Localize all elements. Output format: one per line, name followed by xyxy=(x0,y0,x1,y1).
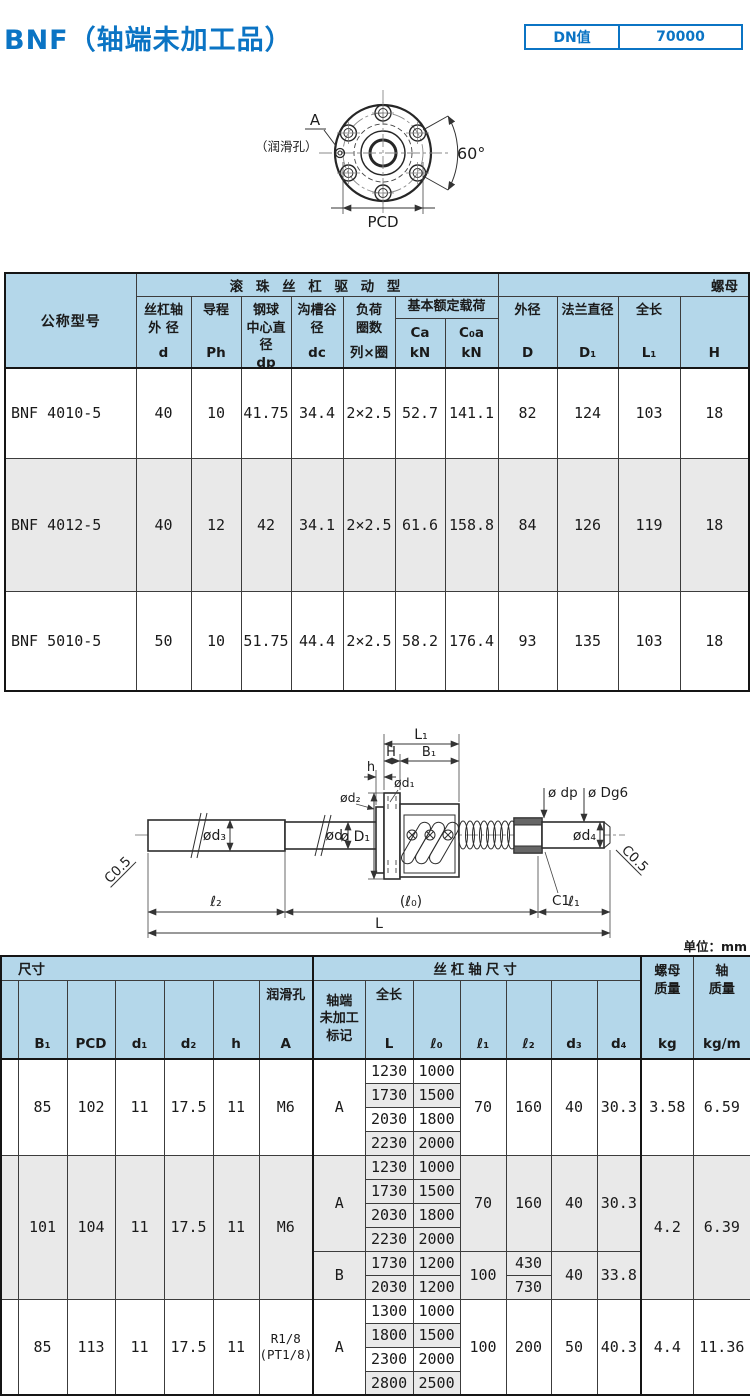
cell-model: BNF 4012-5 xyxy=(5,458,136,591)
cell-model: BNF 4010-5 xyxy=(5,368,136,458)
col-header-shaft-mass: 轴 质量kg/m xyxy=(693,956,750,1059)
label-pcd: PCD xyxy=(367,213,398,231)
page-title: BNF（轴端未加工品） xyxy=(4,18,293,57)
cell-blank xyxy=(1,1059,18,1155)
lube-hole-callout: A （润滑孔） xyxy=(255,111,336,154)
label-d2: ød₂ xyxy=(340,790,361,805)
wiper-collar xyxy=(514,818,542,853)
label-d4: ød₄ xyxy=(573,828,596,844)
label-lube-hole: （润滑孔） xyxy=(255,139,318,154)
label-d3: ød₃ xyxy=(203,828,226,844)
label-L1: L₁ xyxy=(414,727,427,743)
col-header-turns: 负荷 圈数列×圈 xyxy=(343,296,395,368)
label-L: L xyxy=(375,916,383,932)
col-header-ca: CakN xyxy=(395,318,445,368)
table-row: 101 104 11 17.5 11 M6 A 1230 1000 70 160… xyxy=(1,1155,750,1179)
col-header-d: 丝杠轴 外 径d xyxy=(136,296,191,368)
col-header-l0: ℓ₀ xyxy=(413,980,460,1059)
label-l0: (ℓ₀) xyxy=(400,894,422,910)
group-header-nut: 螺母 xyxy=(498,273,749,296)
catalog-page: { "page": { "title": "BNF（轴端未加工品）", "uni… xyxy=(0,0,750,1400)
col-header-mark: 轴端 未加工 标记 xyxy=(313,980,365,1059)
dn-label: DN值 xyxy=(526,26,620,48)
label-c05-right: C0.5 xyxy=(618,842,651,875)
group-header-size: 尺寸 xyxy=(1,956,313,980)
cell-model: BNF 5010-5 xyxy=(5,591,136,691)
col-header-d3: d₃ xyxy=(551,980,597,1059)
table-row: 85 102 11 17.5 11 M6 A 1230 1000 70 160 … xyxy=(1,1059,750,1083)
col-header-h: h xyxy=(213,980,259,1059)
col-header-d4: d₄ xyxy=(597,980,641,1059)
col-header-c0a: C₀akN xyxy=(445,318,498,368)
dn-value-box: DN值 70000 xyxy=(524,24,743,50)
label-c05-left: C0.5 xyxy=(101,854,134,887)
col-header-d2: d₂ xyxy=(164,980,213,1059)
label-dg6: ø Dg6 xyxy=(588,785,628,801)
col-header-nut-mass: 螺母 质量kg xyxy=(641,956,693,1059)
col-header-model: 公称型号 xyxy=(5,273,136,368)
col-header-dc: 沟槽谷径dc xyxy=(291,296,343,368)
col-header-D: 外径D xyxy=(498,296,557,368)
col-header-B1: B₁ xyxy=(18,980,67,1059)
col-header-blank xyxy=(1,980,18,1059)
table-row: BNF 4012-5 40 12 42 34.1 2×2.5 61.6 158.… xyxy=(5,458,749,591)
col-header-ph: 导程Ph xyxy=(191,296,241,368)
table-row: BNF 5010-5 50 10 51.75 44.4 2×2.5 58.2 1… xyxy=(5,591,749,691)
col-header-L: 全长L xyxy=(365,980,413,1059)
col-header-l2: ℓ₂ xyxy=(506,980,551,1059)
dimensions-table: 尺寸 丝杠轴尺寸 螺母 质量kg 轴 质量kg/m B₁ PCD d₁ d₂ h… xyxy=(0,955,750,1396)
label-h: h xyxy=(367,760,375,775)
label-d1: ød₁ xyxy=(394,775,415,790)
label-D1: ø D₁ xyxy=(341,829,370,845)
col-header-lube: 润滑孔A xyxy=(259,980,313,1059)
table-row: 85 113 11 17.5 11 R1/8 (PT1/8) A 1300 10… xyxy=(1,1299,750,1323)
col-header-load: 基本额定载荷 xyxy=(395,296,498,318)
label-l2: ℓ₂ xyxy=(209,894,221,910)
ballscrew-side-view-drawing: L₁ H B₁ h ød₁ ød₂ ø dp ø Dg6 ød₃ ød ø D₁… xyxy=(0,690,750,950)
label-l1: ℓ₁ xyxy=(567,894,579,910)
col-header-L1: 全长L₁ xyxy=(618,296,680,368)
group-header-drive: 滚 珠 丝 杠 驱 动 型 xyxy=(136,273,498,296)
col-header-D1: 法兰直径D₁ xyxy=(557,296,618,368)
label-B1: B₁ xyxy=(422,745,436,760)
col-header-dp: 钢球 中心直径dp xyxy=(241,296,291,368)
label-H: H xyxy=(386,745,396,760)
group-header-shaft: 丝杠轴尺寸 xyxy=(313,956,641,980)
dn-value: 70000 xyxy=(620,26,741,48)
col-header-l1: ℓ₁ xyxy=(460,980,506,1059)
label-a: A xyxy=(310,111,321,129)
cell-blank xyxy=(1,1299,18,1395)
col-header-H: H xyxy=(680,296,749,368)
unit-note: 单位：mm xyxy=(683,936,747,955)
col-header-d1: d₁ xyxy=(115,980,164,1059)
table-row: BNF 4010-5 40 10 41.75 34.4 2×2.5 52.7 1… xyxy=(5,368,749,458)
flange-front-view-diagram: A （润滑孔） 60° PCD xyxy=(235,80,535,245)
specs-table: 公称型号 滚 珠 丝 杠 驱 动 型 螺母 丝杠轴 外 径d 导程Ph 钢球 中… xyxy=(4,272,750,692)
col-header-PCD: PCD xyxy=(67,980,115,1059)
cell-blank xyxy=(1,1155,18,1299)
label-60deg: 60° xyxy=(457,144,485,163)
label-dp: ø dp xyxy=(548,785,578,801)
